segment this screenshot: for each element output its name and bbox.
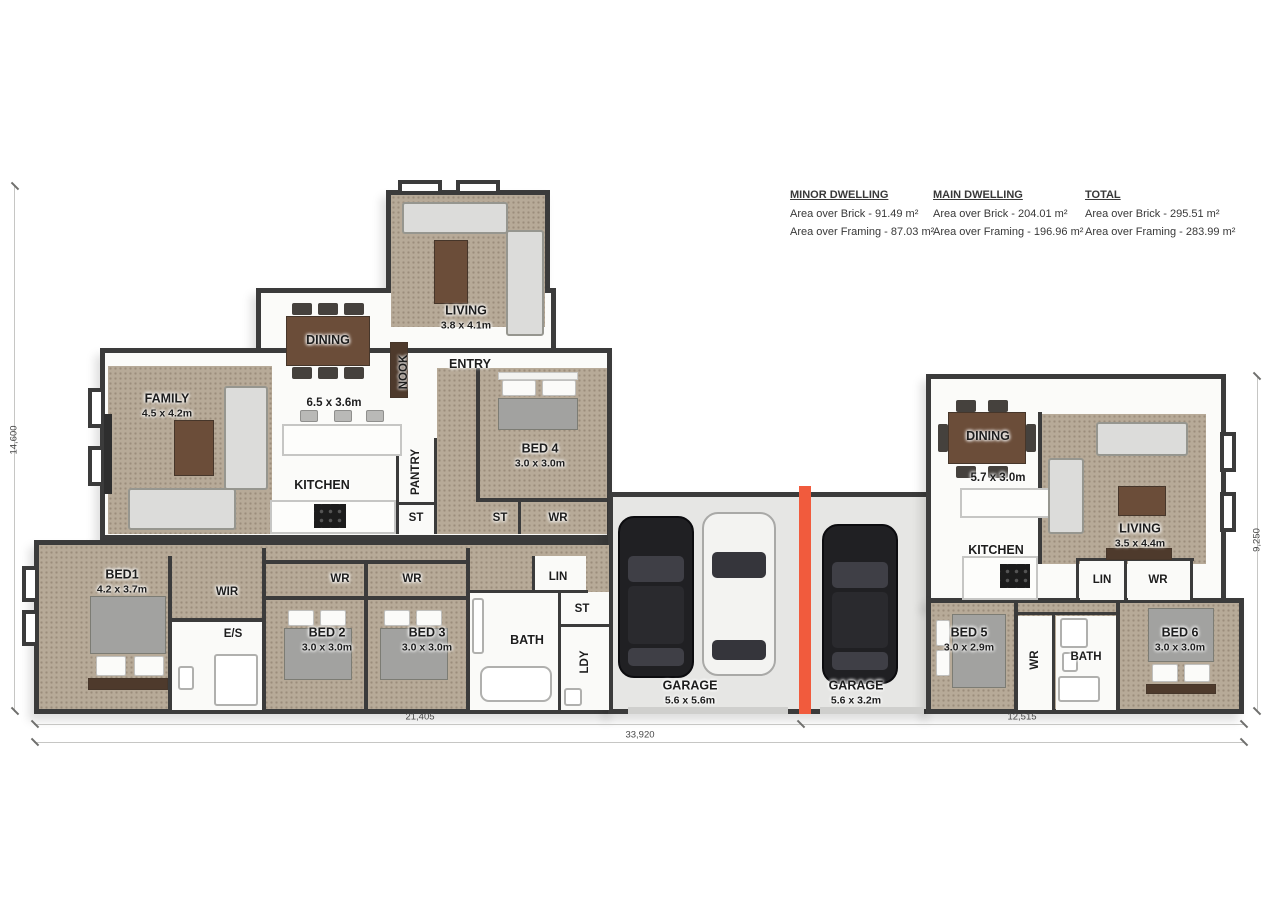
bay-window <box>22 610 39 646</box>
sofa <box>506 230 544 336</box>
coffee-table <box>434 240 468 304</box>
wall-partition <box>1052 612 1055 712</box>
car-roof <box>832 592 888 648</box>
room-label-dining-minor: DINING <box>966 429 1010 445</box>
dim-text-bottom-minor: 12,515 <box>1007 712 1036 723</box>
dining-chair <box>318 367 338 379</box>
dim-text-left: 14,600 <box>9 425 20 454</box>
room-dims-dining-minor: 5.7 x 3.0m <box>971 471 1026 485</box>
room-dims: 3.0 x 3.0m <box>1155 641 1205 654</box>
vanity <box>472 598 484 654</box>
car-roof <box>628 586 684 644</box>
summary-total-title: TOTAL <box>1085 186 1255 205</box>
wall-partition <box>476 368 480 502</box>
room-dims: 3.0 x 3.0m <box>402 641 452 654</box>
kitchen-island <box>282 424 402 456</box>
bay-window <box>398 180 442 195</box>
kitchen-island <box>960 488 1058 518</box>
summary-main-framing: Area over Framing - 196.96 m² <box>933 223 1103 241</box>
dining-chair <box>344 367 364 379</box>
shower <box>1060 618 1088 648</box>
cooktop <box>1000 564 1030 588</box>
car-windshield <box>712 552 766 578</box>
stool <box>300 410 318 422</box>
room-label-st-hall: ST <box>493 511 508 525</box>
stool <box>366 410 384 422</box>
wall-partition <box>466 590 588 593</box>
room-name: BED 5 <box>944 626 994 642</box>
room-label-lin-minor: LIN <box>1093 573 1112 587</box>
room-dims: 4.5 x 4.2m <box>142 407 192 420</box>
wall-partition <box>1014 602 1018 712</box>
dim-tick <box>11 707 19 715</box>
wall-partition <box>1124 558 1127 602</box>
car-rear-window <box>832 652 888 670</box>
sofa <box>1048 458 1084 534</box>
room-name: LIVING <box>1115 522 1165 538</box>
room-label-wr-living: WR <box>1148 573 1167 587</box>
stool <box>334 410 352 422</box>
shower <box>214 654 258 706</box>
room-dims: 3.8 x 4.1m <box>441 319 491 332</box>
room-label-wr-hall: WR <box>548 511 567 525</box>
dim-text-right: 9,250 <box>1252 528 1263 552</box>
wall-partition <box>532 556 535 592</box>
wall-partition <box>518 502 521 534</box>
bed <box>498 398 578 430</box>
dining-chair <box>938 424 948 452</box>
dining-chair <box>318 303 338 315</box>
wall-partition <box>558 624 609 627</box>
room-name: GARAGE <box>663 679 718 695</box>
dim-line-bottom-spans <box>34 724 1244 725</box>
bay-window <box>1220 492 1236 532</box>
room-name: BED 6 <box>1155 626 1205 642</box>
car-rear-window <box>712 640 766 660</box>
cooktop <box>314 504 346 528</box>
room-dims: 3.0 x 3.0m <box>515 457 565 470</box>
toilet <box>178 666 194 690</box>
garage-door <box>628 707 788 714</box>
bed-headboard <box>498 372 578 380</box>
tv-unit <box>104 414 112 494</box>
sofa <box>224 386 268 490</box>
summary-main-brick: Area over Brick - 204.01 m² <box>933 205 1103 223</box>
summary-total: TOTAL Area over Brick - 295.51 m² Area o… <box>1085 186 1255 241</box>
room-label-bath-minor: BATH <box>1070 650 1101 664</box>
room-label-kitchen-main: KITCHEN <box>294 478 350 494</box>
room-dims: 3.0 x 3.0m <box>302 641 352 654</box>
room-label-bed6: BED 6 3.0 x 3.0m <box>1155 626 1205 655</box>
room-dims: 4.2 x 3.7m <box>97 583 147 596</box>
room-label-ensuite: E/S <box>224 627 243 641</box>
wall-partition <box>364 560 368 714</box>
bed-pillow <box>288 610 314 626</box>
bed-headboard <box>88 678 168 690</box>
room-label-wr-bed3: WR <box>402 572 421 586</box>
coffee-table <box>1118 486 1166 516</box>
room-label-wr-bed2: WR <box>330 572 349 586</box>
dining-chair <box>988 400 1008 412</box>
room-label-st-lin: ST <box>575 602 590 616</box>
room-label-bed4: BED 4 3.0 x 3.0m <box>515 442 565 471</box>
room-name: BED1 <box>97 568 147 584</box>
floor-plan-page: { "summary": { "minor": { "title": "MINO… <box>0 0 1280 905</box>
dim-text-bottom-total: 33,920 <box>625 730 654 741</box>
bed-pillow <box>96 656 126 676</box>
room-label-entry: ENTRY <box>449 357 491 373</box>
bed-pillow <box>542 380 576 396</box>
room-label-lin-main: LIN <box>549 570 568 584</box>
wall-partition <box>1014 612 1120 615</box>
wall-partition <box>558 592 561 714</box>
dim-text-bottom-main: 21,405 <box>405 712 434 723</box>
bed-pillow <box>502 380 536 396</box>
bay-window <box>1220 432 1236 472</box>
room-label-garage-minor: GARAGE 5.6 x 3.2m <box>829 679 884 708</box>
room-label-st-pantry: ST <box>409 511 424 525</box>
sofa <box>128 488 236 530</box>
wall-partition <box>1190 558 1193 602</box>
dwelling-divider-line <box>799 486 811 714</box>
sofa <box>1096 422 1188 456</box>
car-black <box>822 524 898 684</box>
car-windshield <box>628 556 684 582</box>
room-label-kitchen-minor: KITCHEN <box>968 543 1024 559</box>
bathtub <box>480 666 552 702</box>
wall-partition <box>434 438 437 534</box>
wall-partition <box>1076 558 1079 602</box>
summary-total-framing: Area over Framing - 283.99 m² <box>1085 223 1255 241</box>
wall-partition <box>1116 602 1120 712</box>
wall-partition <box>168 556 172 714</box>
dim-tick <box>11 182 19 190</box>
bay-window <box>88 446 105 486</box>
car-white <box>702 512 776 676</box>
room-name: LIVING <box>441 304 491 320</box>
room-dims: 5.6 x 5.6m <box>663 694 718 707</box>
room-label-garage-main: GARAGE 5.6 x 5.6m <box>663 679 718 708</box>
room-label-wr-bed6: WR <box>1029 650 1041 669</box>
dining-chair <box>292 303 312 315</box>
bay-window <box>456 180 500 195</box>
room-label-nook: NOOK <box>398 355 410 390</box>
dining-chair <box>292 367 312 379</box>
room-label-living-minor: LIVING 3.5 x 4.4m <box>1115 522 1165 551</box>
bed <box>90 596 166 654</box>
room-name: BED 3 <box>402 626 452 642</box>
bed-pillow <box>1152 664 1178 682</box>
room-label-pantry: PANTRY <box>410 449 422 495</box>
room-label-bath-main: BATH <box>510 633 544 649</box>
dining-chair <box>344 303 364 315</box>
dining-chair <box>1026 424 1036 452</box>
room-name: BED 4 <box>515 442 565 458</box>
bed-pillow <box>1184 664 1210 682</box>
bed-pillow <box>384 610 410 626</box>
bed-pillow <box>134 656 164 676</box>
room-label-dining-main: DINING <box>306 333 350 349</box>
car-windshield <box>832 562 888 588</box>
bay-window <box>22 566 39 602</box>
bed-pillow <box>416 610 442 626</box>
wall-partition <box>262 548 266 714</box>
car-black <box>618 516 694 678</box>
room-label-ldy: LDY <box>579 651 591 674</box>
room-dims: 5.6 x 3.2m <box>829 694 884 707</box>
bed-headboard <box>1146 684 1216 694</box>
room-dims: 3.5 x 4.4m <box>1115 537 1165 550</box>
room-label-family: FAMILY 4.5 x 4.2m <box>142 392 192 421</box>
car-rear-window <box>628 648 684 666</box>
summary-main-title: MAIN DWELLING <box>933 186 1103 205</box>
room-name: FAMILY <box>142 392 192 408</box>
room-name: GARAGE <box>829 679 884 695</box>
room-label-bed2: BED 2 3.0 x 3.0m <box>302 626 352 655</box>
bed-pillow <box>320 610 346 626</box>
wall-partition <box>476 498 607 502</box>
coffee-table <box>174 420 214 476</box>
dim-line-bottom-total <box>34 742 1244 743</box>
room-name: BED 2 <box>302 626 352 642</box>
room-label-bed1: BED1 4.2 x 3.7m <box>97 568 147 597</box>
vanity <box>1058 676 1100 702</box>
washing-machine <box>564 688 582 706</box>
room-dims: 3.0 x 2.9m <box>944 641 994 654</box>
garage-door <box>820 707 924 714</box>
wall-partition <box>466 548 470 714</box>
room-label-bed5: BED 5 3.0 x 2.9m <box>944 626 994 655</box>
bay-window <box>88 388 105 428</box>
room-label-bed3: BED 3 3.0 x 3.0m <box>402 626 452 655</box>
room-dims-kitchen-dining: 6.5 x 3.6m <box>307 396 362 410</box>
sofa <box>402 202 508 234</box>
room-label-living-top: LIVING 3.8 x 4.1m <box>441 304 491 333</box>
room-label-wir: WIR <box>216 585 238 599</box>
wall-partition <box>396 502 437 505</box>
wall-partition <box>168 618 264 622</box>
dining-chair <box>956 400 976 412</box>
summary-total-brick: Area over Brick - 295.51 m² <box>1085 205 1255 223</box>
summary-main-dwelling: MAIN DWELLING Area over Brick - 204.01 m… <box>933 186 1103 241</box>
